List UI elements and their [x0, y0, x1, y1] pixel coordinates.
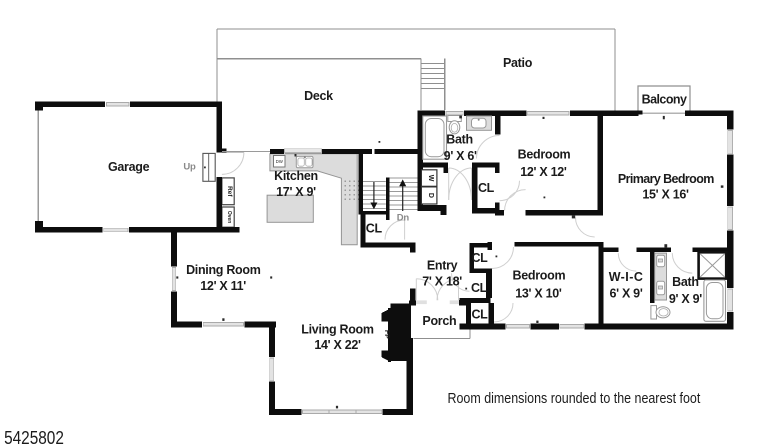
svg-text:Patio: Patio [503, 56, 533, 70]
svg-text:CL: CL [471, 308, 488, 322]
svg-text:Dining Room: Dining Room [186, 263, 261, 277]
svg-text:17' X 9': 17' X 9' [276, 185, 316, 199]
svg-text:DW: DW [276, 159, 283, 164]
svg-text:Entry: Entry [427, 258, 458, 272]
svg-text:Bedroom: Bedroom [513, 269, 566, 283]
svg-text:FP: FP [383, 330, 390, 339]
svg-text:9' X 9': 9' X 9' [669, 292, 702, 306]
svg-text:Porch: Porch [422, 314, 456, 328]
svg-text:Kitchen: Kitchen [274, 169, 318, 183]
svg-text:Balcony: Balcony [642, 93, 687, 107]
svg-text:15' X 16': 15' X 16' [642, 188, 689, 202]
svg-text:Room dimensions rounded to the: Room dimensions rounded to the nearest f… [448, 390, 701, 406]
svg-text:5425802: 5425802 [4, 428, 64, 448]
svg-text:CL: CL [471, 281, 488, 295]
svg-text:Bath: Bath [446, 133, 473, 147]
svg-text:Oven: Oven [226, 211, 232, 224]
svg-text:6' X 9': 6' X 9' [609, 286, 642, 300]
svg-text:Ref: Ref [226, 186, 233, 197]
svg-text:CL: CL [478, 181, 495, 195]
svg-text:CL: CL [366, 222, 383, 236]
svg-text:12' X 12': 12' X 12' [520, 165, 567, 179]
svg-text:Up: Up [183, 162, 196, 173]
svg-text:Garage: Garage [108, 160, 150, 174]
svg-text:Primary Bedroom: Primary Bedroom [618, 172, 714, 186]
svg-text:Deck: Deck [304, 89, 333, 103]
svg-text:Living Room: Living Room [301, 323, 374, 337]
svg-text:13' X 10': 13' X 10' [515, 286, 562, 300]
svg-text:9' X 6': 9' X 6' [444, 149, 477, 163]
svg-text:D: D [427, 193, 434, 198]
svg-text:W-I-C: W-I-C [609, 270, 644, 284]
svg-text:7' X 18': 7' X 18' [422, 275, 462, 289]
svg-text:Dn: Dn [397, 213, 410, 224]
svg-text:W: W [427, 175, 434, 182]
svg-text:14' X 22': 14' X 22' [314, 338, 361, 352]
svg-text:CL: CL [471, 251, 488, 265]
svg-text:Bath: Bath [672, 275, 699, 289]
svg-text:12' X 11': 12' X 11' [200, 279, 246, 293]
svg-text:Bedroom: Bedroom [518, 148, 571, 162]
